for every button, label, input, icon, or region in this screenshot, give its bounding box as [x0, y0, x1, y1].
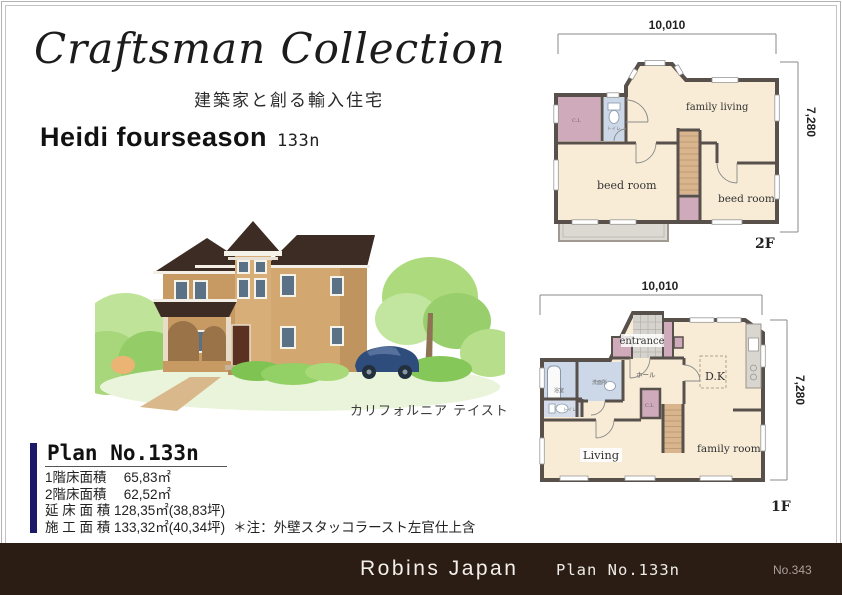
model-code: 133n — [277, 131, 320, 151]
area-row-1f: 1階床面積 65,83㎡ — [45, 470, 475, 487]
house — [153, 221, 375, 375]
plan-summary-rows: 1階床面積 65,83㎡ 2階床面積 62,52㎡ 延 床 面 積 128,35… — [45, 470, 475, 536]
label-washroom: 洗面所 — [592, 379, 607, 386]
plan-summary-title: Plan No.133n — [45, 441, 227, 467]
label-closet-2f: C.L — [572, 118, 581, 124]
footer-company: Robins Japan — [360, 557, 518, 581]
floor-label-2f: 2F — [755, 236, 775, 252]
label-hall: ホール — [636, 371, 656, 379]
label-bedroom-right: beed room — [718, 193, 775, 205]
label-closet-1f: C.L — [645, 403, 654, 409]
dim-height-1f: 7,280 — [793, 375, 807, 405]
label-toilet-1f: トイレ — [563, 408, 577, 413]
balcony — [559, 222, 668, 241]
accent-bar — [30, 443, 37, 533]
floor-plan-2f: 10,010 7,280 — [530, 10, 842, 260]
model-name: Heidi fourseason133n — [40, 122, 320, 153]
flyer-page: Craftsman Collection 建築家と創る輸入住宅 Heidi fo… — [0, 0, 842, 595]
wall-finish-note: ＊注：外壁スタッコラースト左官仕上含 — [233, 520, 475, 535]
toilet-icon-2f — [608, 103, 620, 124]
front-door — [232, 325, 250, 367]
label-dk: D.K — [705, 370, 726, 383]
dim-height-2f: 7,280 — [804, 107, 818, 137]
brand-title: Craftsman Collection — [34, 24, 506, 73]
entrance-closet-small — [674, 337, 683, 348]
dim-width-1f: 10,010 — [642, 279, 679, 293]
label-toilet-2f: トイレ — [607, 127, 621, 132]
area-row-2f: 2階床面積 62,52㎡ — [45, 487, 475, 504]
illustration-caption: カリフォルニア テイスト — [350, 400, 509, 419]
plan-summary: Plan No.133n 1階床面積 65,83㎡ 2階床面積 62,52㎡ 延… — [30, 441, 475, 536]
house-illustration — [95, 185, 505, 420]
footer-plan-label: Plan No.133n — [556, 561, 680, 579]
footer-bar: Robins Japan Plan No.133n No.343 — [0, 543, 842, 595]
brand-subtitle: 建築家と創る輸入住宅 — [194, 86, 384, 111]
model-name-text: Heidi fourseason — [40, 122, 267, 152]
label-family-living: family living — [686, 102, 749, 113]
label-family-room: family room — [697, 443, 761, 455]
label-entrance: entrance — [619, 336, 664, 347]
stairs-1f — [663, 404, 683, 453]
label-living: Living — [583, 448, 620, 462]
area-row-total: 延 床 面 積 128,35㎡(38,83坪) — [45, 503, 475, 520]
floor-plan-1f: 10,010 7,280 — [530, 270, 842, 520]
dim-width-2f: 10,010 — [649, 18, 686, 32]
closet-2f — [679, 196, 699, 220]
kitchen-counter — [746, 324, 761, 388]
area-row-construction: 施 工 面 積 133,32㎡(40,34坪)＊注：外壁スタッコラースト左官仕上… — [45, 520, 475, 537]
label-bedroom-left: beed room — [597, 179, 657, 192]
floor-label-1f: 1F — [771, 499, 791, 515]
footer-sheet-number: No.343 — [773, 563, 812, 577]
label-bath: 浴室 — [554, 387, 564, 394]
